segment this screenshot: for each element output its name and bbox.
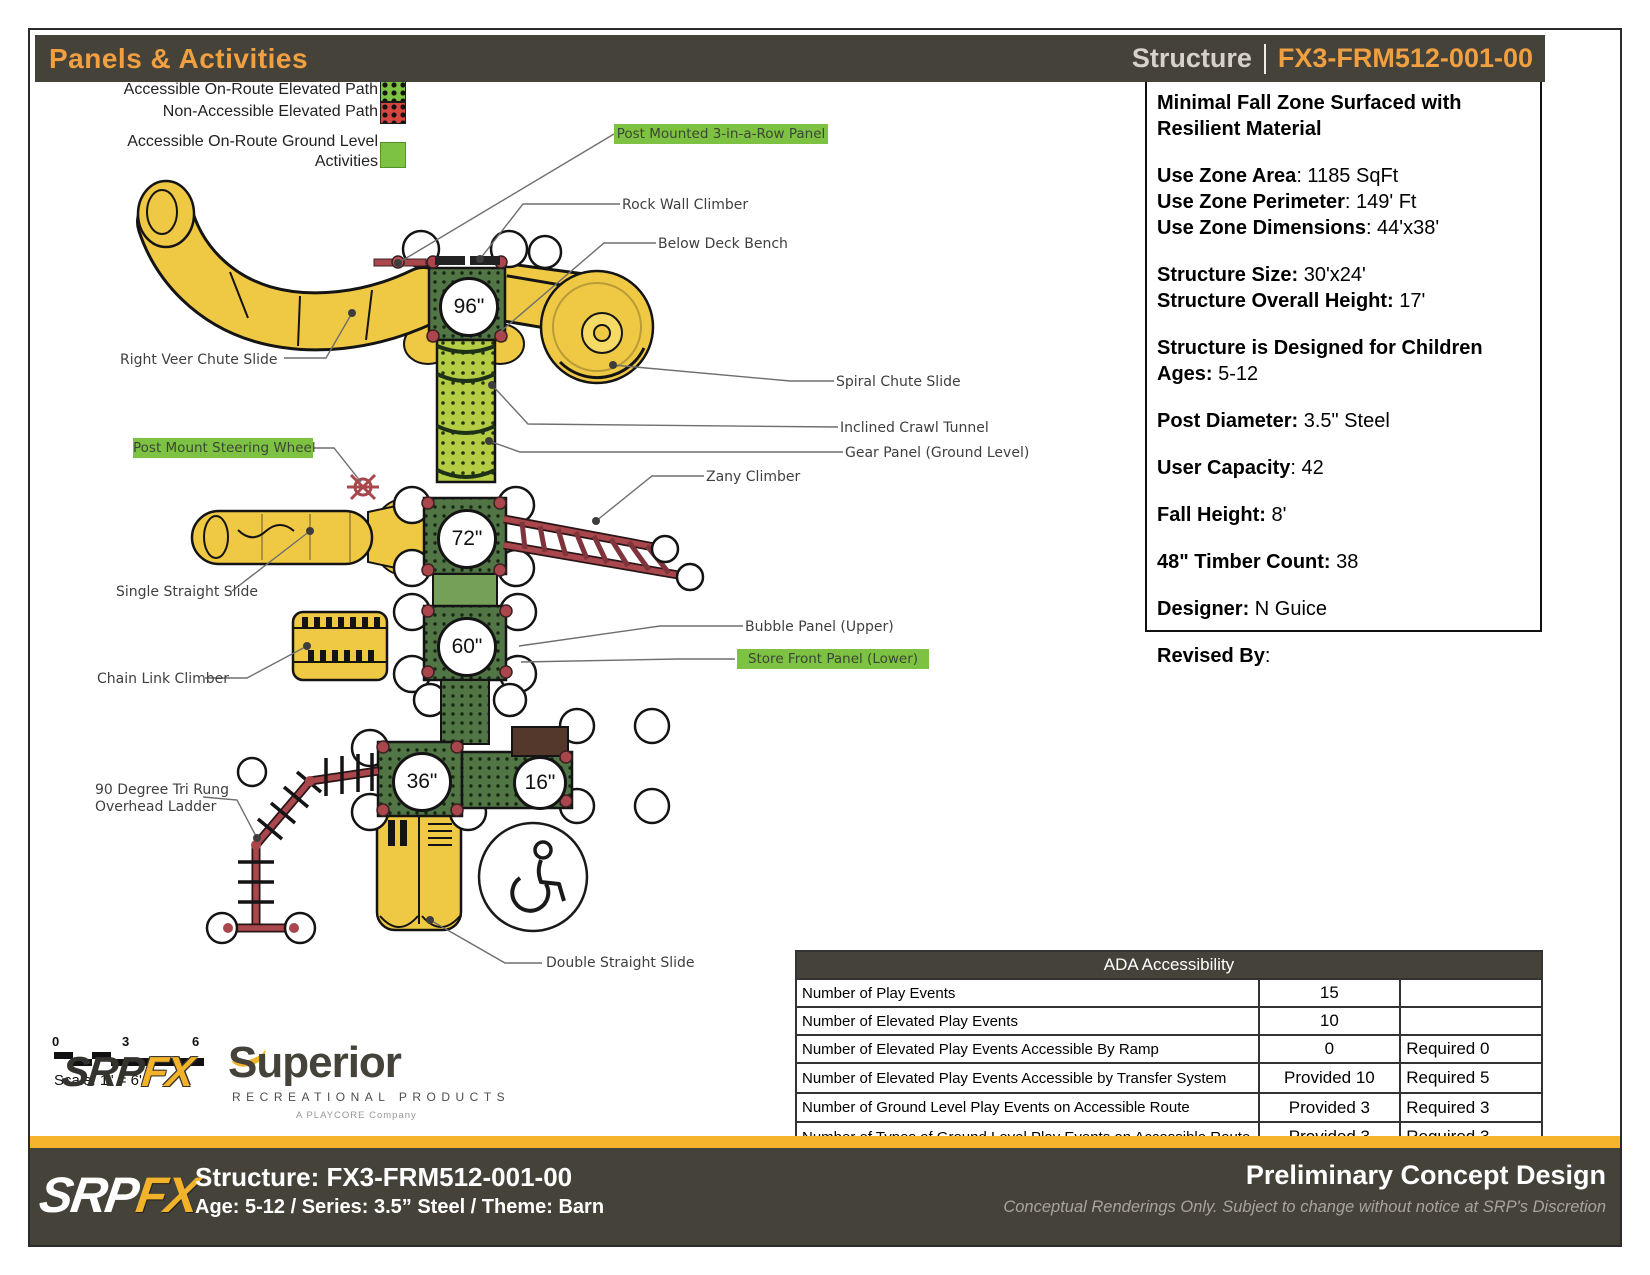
structure-code: FX3-FRM512-001-00	[1278, 43, 1533, 74]
legend-ground-label-line2: Activities	[68, 153, 378, 171]
table-row: Number of Elevated Play Events Accessibl…	[796, 1063, 1542, 1093]
callout-overhead-ladder-line1: 90 Degree Tri Rung	[95, 782, 229, 798]
footer-srpfx-logo: SRPFX	[36, 1166, 201, 1224]
callout-overhead-ladder-line2: Overhead Ladder	[95, 799, 216, 815]
ada-row-provided: 15	[1259, 979, 1401, 1007]
ada-row-name: Number of Elevated Play Events Accessibl…	[796, 1035, 1259, 1063]
spec-timber-line: 48" Timber Count: 38	[1157, 549, 1530, 575]
footer-bar: SRPFX Structure: FX3-FRM512-001-00 Age: …	[30, 1148, 1620, 1247]
legend-elevated-non-accessible-swatch	[380, 102, 406, 124]
wheelchair-icon	[479, 823, 587, 931]
spec-fall-line: Fall Height: 8'	[1157, 502, 1530, 528]
ada-table-title: ADA Accessibility	[796, 951, 1542, 979]
inclined-crawl-tunnel	[437, 340, 495, 482]
playcore-tagline: A PLAYCORE Company	[296, 1110, 417, 1121]
spec-capacity-line: User Capacity: 42	[1157, 455, 1530, 481]
deck-height-96: 96"	[439, 277, 499, 337]
footer-structure-line: Structure: FX3-FRM512-001-00	[195, 1162, 572, 1193]
deck-height-36: 36"	[392, 752, 452, 812]
deck-corridor-60-36	[441, 680, 489, 744]
legend-ground-swatch	[380, 142, 406, 168]
timber-bench	[512, 727, 568, 756]
legend-elevated-accessible-swatch	[380, 80, 406, 102]
ada-row-provided: 10	[1259, 1007, 1401, 1035]
scale-tick-6: 6	[192, 1034, 199, 1049]
ada-row-name: Number of Ground Level Play Events on Ac…	[796, 1093, 1259, 1122]
legend-ground-label-line1: Accessible On-Route Ground Level	[68, 133, 378, 151]
header-structure-group: Structure FX3-FRM512-001-00	[1132, 43, 1545, 74]
ada-row-provided: Provided 10	[1259, 1063, 1401, 1093]
deck-height-72: 72"	[437, 509, 497, 569]
ada-accessibility-table: ADA Accessibility Number of Play Events …	[795, 950, 1543, 1153]
spec-panel: Minimal Fall Zone Surfaced with Resilien…	[1145, 80, 1542, 632]
callout-inclined-crawl-tunnel: Inclined Crawl Tunnel	[840, 420, 989, 436]
ada-row-required	[1400, 979, 1542, 1007]
scale-tick-0: 0	[52, 1034, 59, 1049]
callout-double-straight-slide: Double Straight Slide	[546, 955, 695, 971]
spec-revised-line: Revised By:	[1157, 643, 1530, 669]
spec-line: Use Zone Area: 1185 SqFt	[1157, 163, 1530, 189]
superior-logo: Superior	[228, 1038, 401, 1088]
table-row: Number of Elevated Play Events Accessibl…	[796, 1035, 1542, 1063]
ada-row-provided: 0	[1259, 1035, 1401, 1063]
footer-meta-line: Age: 5-12 / Series: 3.5” Steel / Theme: …	[195, 1196, 604, 1219]
superior-subtitle: RECREATIONAL PRODUCTS	[232, 1090, 510, 1104]
deck-height-60: 60"	[437, 617, 497, 677]
callout-zany-climber: Zany Climber	[706, 469, 800, 485]
footer-accent-strip	[30, 1136, 1620, 1148]
ada-row-name: Number of Elevated Play Events Accessibl…	[796, 1063, 1259, 1093]
callout-gear-panel: Gear Panel (Ground Level)	[845, 445, 1029, 461]
callout-below-deck-bench: Below Deck Bench	[658, 236, 788, 252]
callout-spiral-chute-slide: Spiral Chute Slide	[836, 374, 961, 390]
page-title: Panels & Activities	[35, 43, 308, 75]
deck-connector-72-60	[433, 574, 497, 608]
overhead-ladder	[207, 753, 378, 943]
ada-row-required: Required 3	[1400, 1093, 1542, 1122]
spec-line: Use Zone Dimensions: 44'x38'	[1157, 215, 1530, 241]
spec-post-line: Post Diameter: 3.5" Steel	[1157, 408, 1530, 434]
table-row: Number of Play Events 15	[796, 979, 1542, 1007]
callout-post-mounted-3-row-panel: Post Mounted 3-in-a-Row Panel	[614, 124, 828, 144]
zany-climber	[504, 519, 703, 590]
callout-single-straight-slide: Single Straight Slide	[116, 584, 258, 600]
footer-disclaimer: Conceptual Renderings Only. Subject to c…	[1003, 1198, 1606, 1217]
steering-wheel-icon	[347, 475, 379, 499]
table-row: Number of Elevated Play Events 10	[796, 1007, 1542, 1035]
header-divider	[1264, 44, 1266, 74]
legend-elevated-non-accessible-label: Non-Accessible Elevated Path	[68, 103, 378, 121]
spec-designer-line: Designer: N Guice	[1157, 596, 1530, 622]
rock-wall-climber	[435, 256, 500, 265]
footer-design-title: Preliminary Concept Design	[1246, 1160, 1606, 1191]
header-bar: Panels & Activities Structure FX3-FRM512…	[35, 35, 1545, 82]
ada-row-name: Number of Play Events	[796, 979, 1259, 1007]
scale-tick-3: 3	[122, 1034, 129, 1049]
spec-line: Structure Size: 30'x24'	[1157, 262, 1530, 288]
ada-row-required: Required 0	[1400, 1035, 1542, 1063]
callout-bubble-panel: Bubble Panel (Upper)	[745, 619, 894, 635]
spec-line: Structure Overall Height: 17'	[1157, 288, 1530, 314]
ada-row-provided: Provided 3	[1259, 1093, 1401, 1122]
callout-chain-link-climber: Chain Link Climber	[97, 671, 229, 687]
ada-row-required: Required 5	[1400, 1063, 1542, 1093]
spec-line: Use Zone Perimeter: 149' Ft	[1157, 189, 1530, 215]
callout-rock-wall-climber: Rock Wall Climber	[622, 197, 748, 213]
callout-post-mount-steering-wheel: Post Mount Steering Wheel	[133, 438, 313, 458]
ada-row-required	[1400, 1007, 1542, 1035]
table-row: Number of Ground Level Play Events on Ac…	[796, 1093, 1542, 1122]
callout-store-front-panel: Store Front Panel (Lower)	[737, 649, 929, 669]
spec-use-zone-group: Use Zone Area: 1185 SqFt Use Zone Perime…	[1157, 163, 1530, 241]
deck-height-16: 16"	[513, 756, 567, 810]
page-frame: Panels & Activities Structure FX3-FRM512…	[28, 28, 1622, 1247]
ada-row-name: Number of Elevated Play Events	[796, 1007, 1259, 1035]
spec-structure-group: Structure Size: 30'x24' Structure Overal…	[1157, 262, 1530, 314]
legend-elevated-accessible-label: Accessible On-Route Elevated Path	[68, 81, 378, 99]
srpfx-logo: SRPFX	[59, 1048, 194, 1096]
spec-ages-line: Structure is Designed for Children Ages:…	[1157, 335, 1530, 387]
callout-right-veer-chute-slide: Right Veer Chute Slide	[120, 352, 277, 368]
header-structure-label: Structure	[1132, 43, 1252, 74]
spec-title: Minimal Fall Zone Surfaced with Resilien…	[1157, 90, 1530, 142]
